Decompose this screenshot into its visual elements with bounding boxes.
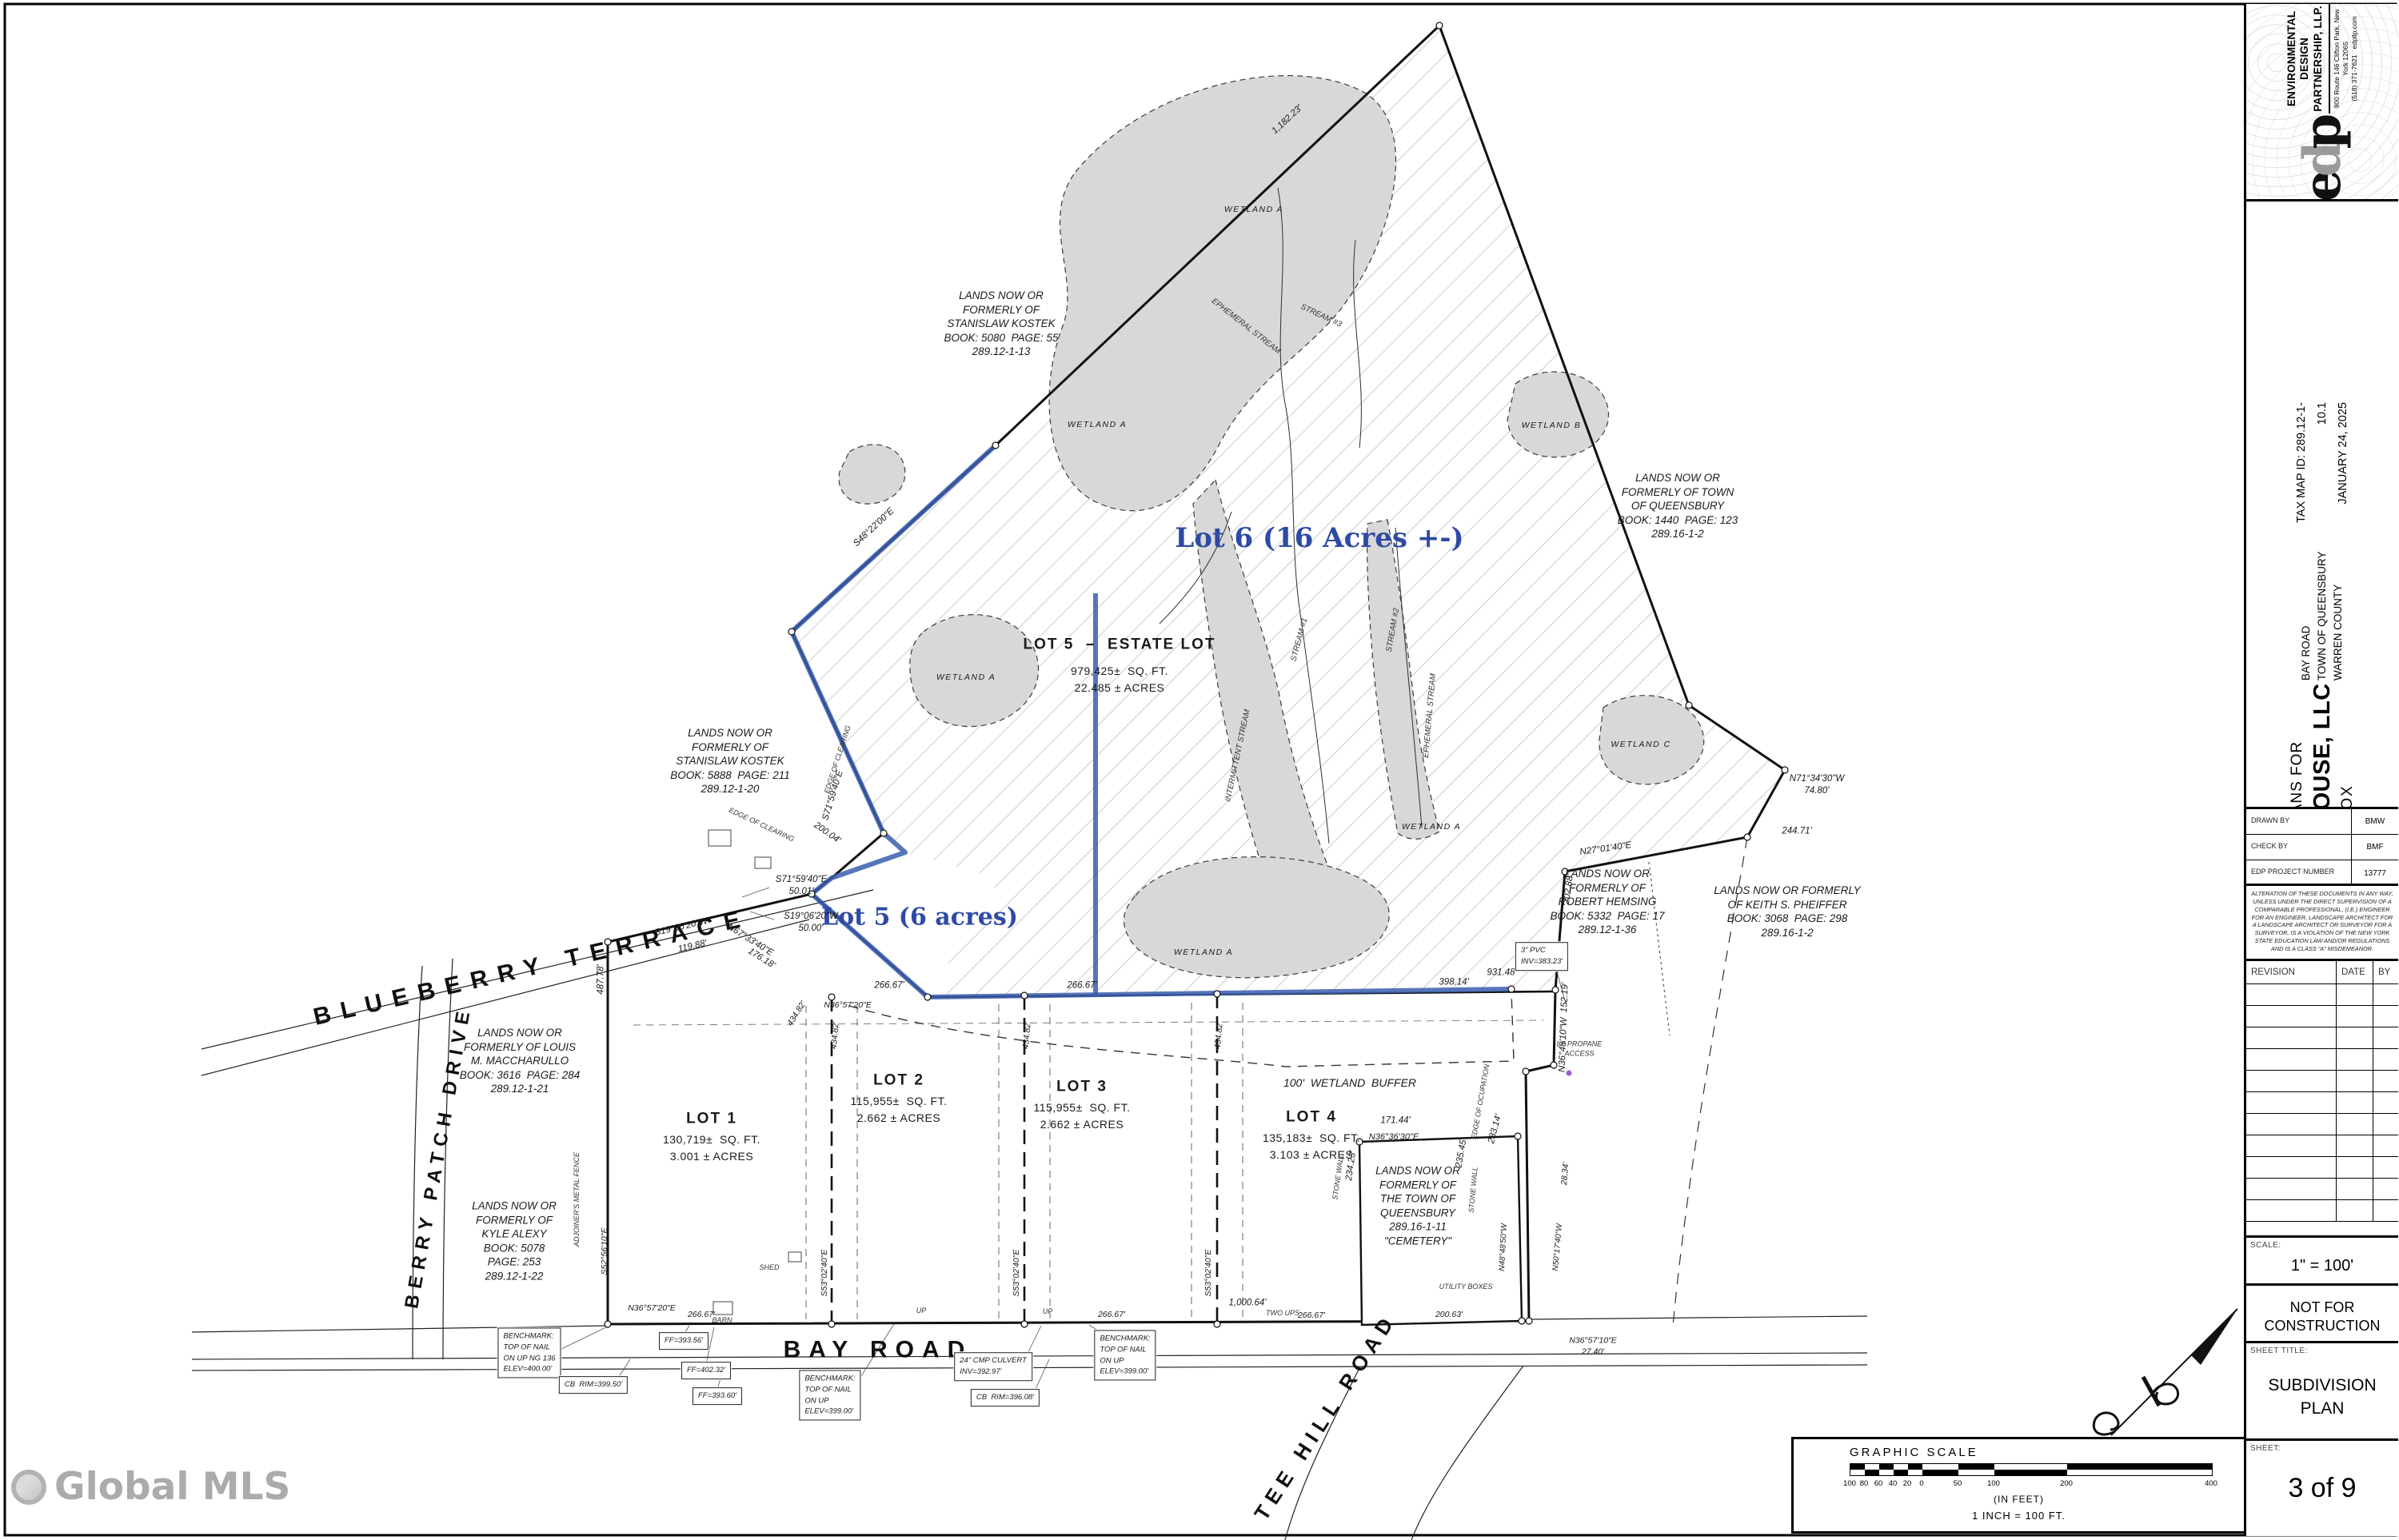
scale-tick: 40 xyxy=(1889,1479,1898,1488)
map-annotation: 200.63' xyxy=(1435,1310,1463,1321)
watermark-text: Global MLS xyxy=(54,1465,290,1509)
disclaimer: ALTERATION OF THESE DOCUMENTS IN ANY WAY… xyxy=(2246,886,2398,961)
wetland-a-label: WETLAND A xyxy=(1224,205,1283,216)
map-annotation: UTILITY BOXES xyxy=(1439,1283,1493,1292)
drawn-by-value: BMW xyxy=(2351,809,2398,834)
wetland-a-label: WETLAND A xyxy=(1402,822,1461,833)
map-annotation: 266.67' xyxy=(1298,1311,1325,1322)
sheet-number-box: SHEET: 3 of 9 xyxy=(2246,1441,2398,1536)
plan-date: JANUARY 24, 2025 xyxy=(2333,402,2353,545)
scale-tick: 50 xyxy=(1954,1479,1962,1488)
title-block: edp ENVIRONMENTAL DESIGN PARTNERSHIP, LL… xyxy=(2244,4,2398,1536)
graphic-scale-title: GRAPHIC SCALE xyxy=(1850,1446,1978,1459)
wetland-a-label: WETLAND A xyxy=(1068,420,1127,431)
benchmark-2: BENCHMARK: TOP OF NAIL ON UP ELEV=399.00… xyxy=(799,1370,860,1420)
scale-label: SCALE: xyxy=(2250,1241,2281,1250)
firm-address: 900 Route 146 Clifton Park, New York 120… xyxy=(2333,10,2349,109)
scale-tick: 20 xyxy=(1903,1479,1912,1488)
project-title-box: SUBDIVISION PLANS FOR GREEN APPLE HOUSE,… xyxy=(2246,201,2398,809)
scale-tick: 60 xyxy=(1874,1479,1883,1488)
scale-tick: 100 xyxy=(1987,1479,2000,1488)
map-annotation: ADJOINER'S METAL FENCE xyxy=(573,1152,582,1247)
map-annotation: S71°59'40"E 50.01' xyxy=(776,874,828,898)
date-column-header: DATE xyxy=(2336,961,2373,983)
credits-box: DRAWN BYBMW CHECK BYBMF EDP PROJECT NUMB… xyxy=(2246,809,2398,886)
label-town-queensbury: LANDS NOW OR FORMERLY OF TOWN OF QUEENSB… xyxy=(1618,471,1738,541)
map-annotation: SHED xyxy=(759,1263,779,1273)
label-cemetery: LANDS NOW OR FORMERLY OF THE TOWN OF QUE… xyxy=(1375,1163,1460,1247)
cb-rim-1: CB RIM=399.50' xyxy=(559,1376,628,1394)
not-for-construction-box: NOT FOR CONSTRUCTION xyxy=(2246,1286,2398,1343)
map-annotation: LP PROPANE ACCESS xyxy=(1557,1039,1603,1058)
pvc-note: 3" PVC INV=383.23' xyxy=(1515,942,1568,971)
lot5-highlight-label: Lot 5 (6 acres) xyxy=(821,902,1018,933)
map-annotation: 266.67' xyxy=(1067,980,1096,992)
ff-3: FF=393.60' xyxy=(693,1387,742,1405)
project-number-value: 13777 xyxy=(2351,860,2398,886)
edp-logo: edp xyxy=(2293,122,2353,201)
sheet-title: SUBDIVISION PLAN xyxy=(2262,1374,2382,1421)
lot4-title: LOT 4 xyxy=(1286,1108,1337,1128)
map-annotation: 487.78' xyxy=(596,964,608,994)
wetland-c-label: WETLAND C xyxy=(1611,740,1671,751)
scale-box: SCALE: 1" = 100' xyxy=(2246,1238,2398,1286)
scale-tick: 400 xyxy=(2205,1479,2217,1488)
lot5-estate-area: 979,425± SQ. FT. 22.485 ± ACRES xyxy=(1071,663,1168,696)
lot1-area: 130,719± SQ. FT. 3.001 ± ACRES xyxy=(663,1131,760,1165)
scale-value: 1" = 100' xyxy=(2246,1257,2398,1275)
map-annotation: 266.67' xyxy=(688,1310,715,1321)
wetland-buffer-label: 100' WETLAND BUFFER xyxy=(1283,1075,1416,1090)
graphic-scale-ratio: 1 INCH = 100 FT. xyxy=(1794,1510,2244,1522)
scale-tick: 80 xyxy=(1860,1479,1869,1488)
firm-website: edpllp.com xyxy=(2350,16,2358,49)
sheet-title-label: SHEET TITLE: xyxy=(2250,1347,2308,1355)
wetland-a-label: WETLAND A xyxy=(1174,948,1233,959)
firm-phone: (518) 371-7621 xyxy=(2350,54,2358,101)
map-annotation: 171.44' xyxy=(1380,1115,1410,1127)
graphic-scale-bar xyxy=(1850,1463,2213,1476)
lot2-title: LOT 2 xyxy=(873,1071,924,1091)
ff-2: FF=402.32' xyxy=(681,1362,731,1379)
map-annotation: N36°57'20"E xyxy=(824,1000,872,1011)
map-annotation: N36°36'30"E xyxy=(1369,1131,1419,1143)
north-arrow-icon xyxy=(2094,1309,2237,1435)
scale-tick: 200 xyxy=(2060,1479,2073,1488)
map-annotation: TWO UPS xyxy=(1266,1309,1299,1319)
scale-tick: 0 xyxy=(1919,1479,1923,1488)
map-annotation: 398.14' xyxy=(1439,977,1468,989)
road-bay-road: BAY ROAD xyxy=(784,1335,973,1366)
label-maccharullo: LANDS NOW OR FORMERLY OF LOUIS M. MACCHA… xyxy=(460,1026,581,1096)
wetland-a-label: WETLAND A xyxy=(936,672,996,684)
plan-sheet: LANDS NOW OR FORMERLY OF STANISLAW KOSTE… xyxy=(0,0,2399,1540)
map-annotation: 266.67' xyxy=(1098,1310,1125,1321)
label-kostek-5888: LANDS NOW OR FORMERLY OF STANISLAW KOSTE… xyxy=(670,726,790,796)
scale-tick: 100 xyxy=(1843,1479,1856,1488)
check-by-label: CHECK BY xyxy=(2251,842,2288,850)
firm-name-line2: PARTNERSHIP, LLP. xyxy=(2312,4,2325,114)
label-kostek-5080: LANDS NOW OR FORMERLY OF STANISLAW KOSTE… xyxy=(944,289,1058,359)
map-annotation: S52°56'10"E xyxy=(600,1228,611,1275)
sheet-title-box: SHEET TITLE: SUBDIVISION PLAN xyxy=(2246,1343,2398,1441)
map-annotation: N71°34'30"W 74.80' xyxy=(1790,773,1844,797)
lot3-area: 115,955± SQ. FT. 2.662 ± ACRES xyxy=(1034,1099,1131,1133)
benchmark-3: BENCHMARK: TOP OF NAIL ON UP ELEV=399.00… xyxy=(1094,1330,1156,1380)
culvert-note: 24" CMP CULVERT INV=392.97' xyxy=(954,1352,1032,1381)
map-annotation: S53°02'40"E xyxy=(820,1250,831,1297)
map-annotation: N36°57'10"E 27.40' xyxy=(1569,1335,1617,1357)
building-footprints xyxy=(709,830,801,1315)
tax-map-id: TAX MAP ID: 289.12-1-10.1 xyxy=(2291,402,2333,545)
globe-icon xyxy=(11,1470,46,1505)
wetland-b-label: WETLAND B xyxy=(1522,421,1582,432)
map-annotation: UP xyxy=(1043,1307,1053,1317)
lot5-estate-title: LOT 5 – ESTATE LOT xyxy=(1024,636,1216,656)
check-by-value: BMF xyxy=(2351,835,2398,860)
map-annotation: N36°57'20"E xyxy=(628,1303,676,1315)
lot3-title: LOT 3 xyxy=(1056,1078,1108,1098)
map-annotation: UP xyxy=(916,1307,927,1316)
map-annotation: S53°02'40"E xyxy=(1012,1250,1023,1297)
lot1-title: LOT 1 xyxy=(686,1110,737,1130)
ff-1: FF=393.56' xyxy=(659,1332,709,1350)
map-annotation: 1,000.64' xyxy=(1229,1298,1267,1310)
project-number-label: EDP PROJECT NUMBER xyxy=(2251,868,2334,876)
map-annotation: S19°06'20"W 50.00' xyxy=(784,911,838,935)
map-annotation: 931.48' xyxy=(1487,967,1516,979)
location-road: BAY ROAD xyxy=(2298,545,2314,680)
label-pheiffer: LANDS NOW OR FORMERLY OF KEITH S. PHEIFF… xyxy=(1714,884,1860,940)
graphic-scale: GRAPHIC SCALE 10080604020050100200400 (I… xyxy=(1791,1437,2244,1534)
revision-table: REVISION DATE BY xyxy=(2246,961,2398,1238)
lot6-highlight-label: Lot 6 (16 Acres +-) xyxy=(1175,521,1463,556)
map-annotation: 244.71' xyxy=(1782,826,1811,838)
label-alexy: LANDS NOW OR FORMERLY OF KYLE ALEXY BOOK… xyxy=(472,1199,557,1283)
graphic-scale-units: (IN FEET) xyxy=(1794,1494,2244,1505)
map-annotation: 28.34' xyxy=(1559,1162,1572,1185)
revision-column-header: REVISION xyxy=(2246,961,2336,983)
sheet-number: 3 of 9 xyxy=(2246,1473,2398,1504)
cb-rim-2: CB RIM=396.08' xyxy=(971,1389,1040,1406)
location-town: TOWN OF QUEENSBURY xyxy=(2314,545,2330,680)
location-county: WARREN COUNTY xyxy=(2330,545,2346,680)
benchmark-1: BENCHMARK: TOP OF NAIL ON UP NG 136 ELEV… xyxy=(497,1327,561,1378)
sheet-number-label: SHEET: xyxy=(2250,1444,2281,1453)
survey-drawing xyxy=(0,0,2399,1540)
map-annotation: 266.67' xyxy=(874,980,904,992)
drawn-by-label: DRAWN BY xyxy=(2251,816,2289,824)
map-annotation: S53°02'40"E xyxy=(1203,1250,1215,1297)
lot2-area: 115,955± SQ. FT. 2.662 ± ACRES xyxy=(851,1093,948,1127)
map-annotation: BARN xyxy=(712,1316,732,1326)
by-column-header: BY xyxy=(2373,961,2398,983)
firm-logo-box: edp ENVIRONMENTAL DESIGN PARTNERSHIP, LL… xyxy=(2246,4,2398,201)
not-for-construction-stamp: NOT FOR CONSTRUCTION xyxy=(2262,1299,2382,1336)
firm-name-line1: ENVIRONMENTAL DESIGN xyxy=(2285,4,2313,114)
watermark: Global MLS xyxy=(11,1465,290,1509)
